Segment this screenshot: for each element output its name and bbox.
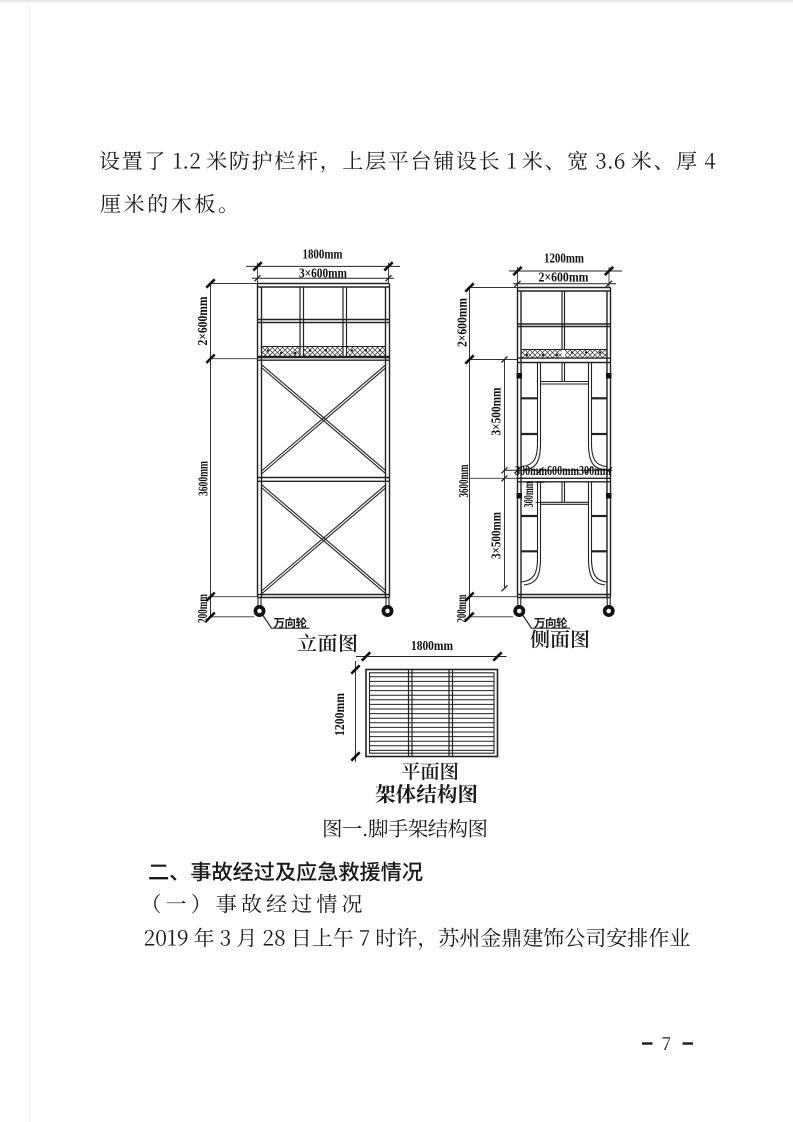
svg-text:2×600mm: 2×600mm — [539, 270, 590, 285]
svg-text:2×600mm: 2×600mm — [195, 296, 210, 346]
svg-text:3600mm: 3600mm — [196, 460, 211, 496]
svg-text:200mm: 200mm — [195, 593, 210, 623]
svg-text:3×500mm: 3×500mm — [489, 511, 504, 559]
svg-text:2×600mm: 2×600mm — [455, 297, 470, 347]
svg-text:300mm: 300mm — [521, 481, 536, 507]
svg-text:3600mm: 3600mm — [456, 464, 471, 497]
svg-text:1200mm: 1200mm — [332, 692, 347, 736]
svg-text:1800mm: 1800mm — [411, 638, 454, 653]
svg-text:200mm: 200mm — [454, 594, 469, 622]
svg-text:3×500mm: 3×500mm — [489, 387, 504, 436]
svg-text:1200mm: 1200mm — [544, 251, 585, 266]
svg-text:1800mm: 1800mm — [303, 247, 344, 262]
svg-text:300mm600mm300mm: 300mm600mm300mm — [515, 463, 612, 478]
svg-text:3×600mm: 3×600mm — [299, 265, 348, 280]
